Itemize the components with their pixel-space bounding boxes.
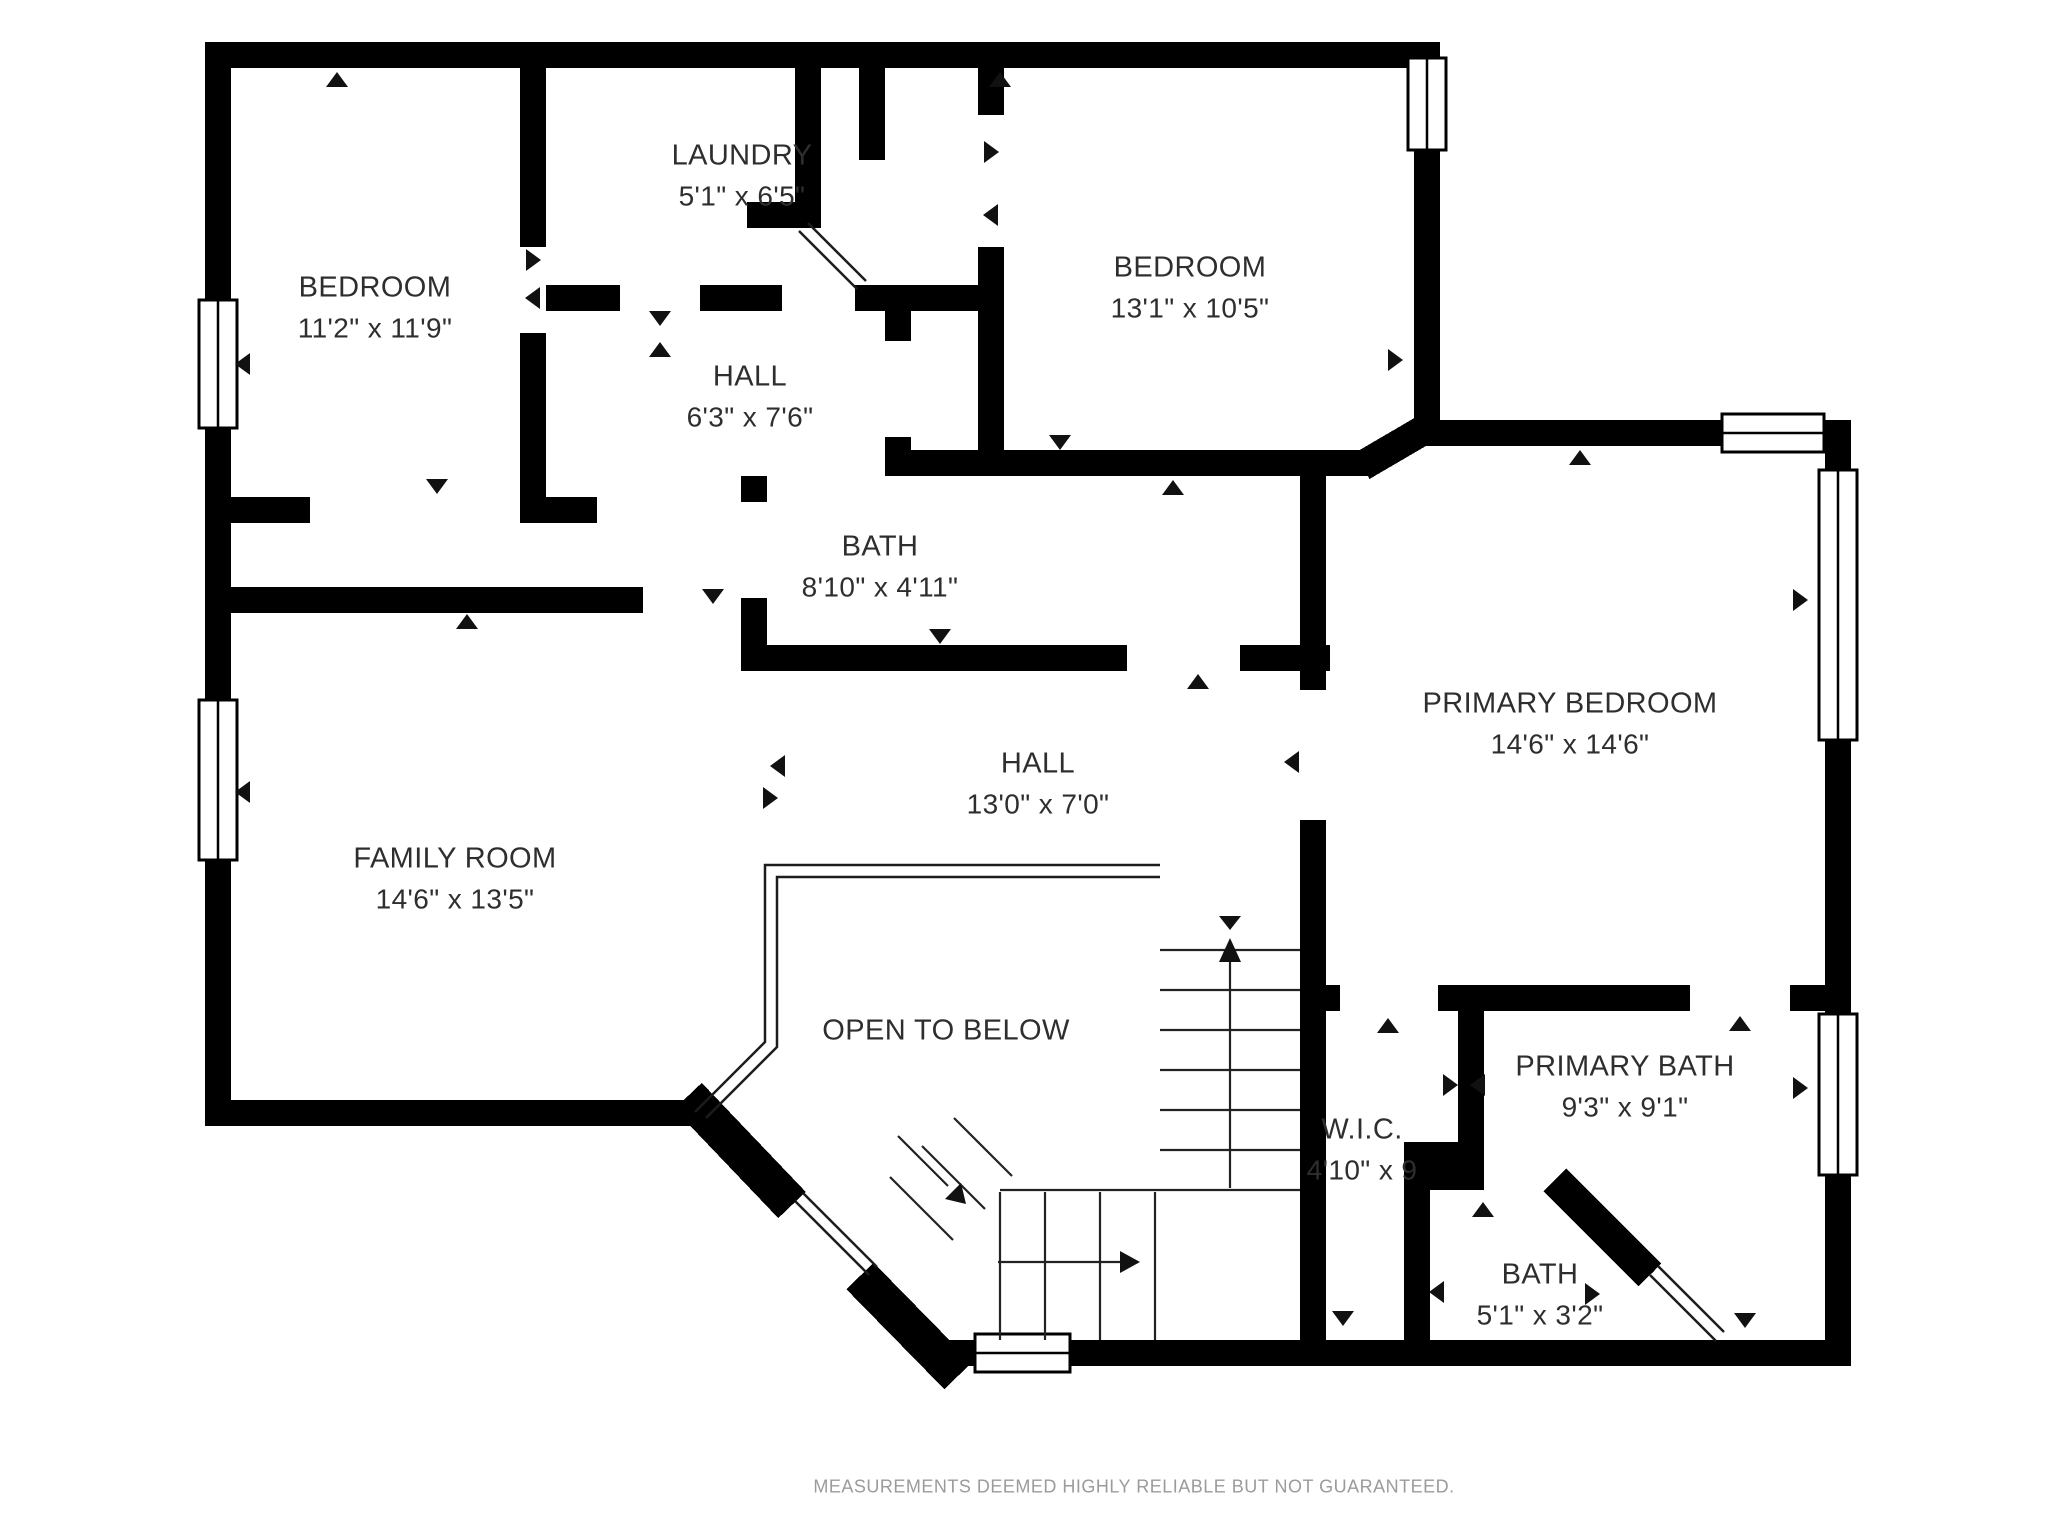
room-name: HALL	[967, 744, 1110, 785]
room-name: HALL	[687, 357, 814, 398]
room-dims: 9'3" x 9'1"	[1515, 1088, 1734, 1128]
room-name: PRIMARY BEDROOM	[1423, 684, 1718, 725]
room-dims: 14'6" x 13'5"	[353, 880, 556, 920]
room-label-open-to-below: OPEN TO BELOW	[822, 1011, 1069, 1052]
room-name: OPEN TO BELOW	[822, 1011, 1069, 1052]
room-dims: 4'10" x 9	[1307, 1151, 1418, 1191]
room-dims: 14'6" x 14'6"	[1423, 725, 1718, 765]
open-to-below-railing	[695, 865, 1160, 1118]
room-name: LAUNDRY	[672, 136, 813, 177]
room-dims: 13'0" x 7'0"	[967, 785, 1110, 825]
room-dims: 13'1" x 10'5"	[1111, 289, 1270, 329]
room-label-primary-bedroom: PRIMARY BEDROOM 14'6" x 14'6"	[1423, 684, 1718, 765]
room-name: BATH	[802, 527, 959, 568]
room-name: BEDROOM	[1111, 248, 1270, 289]
room-name: BEDROOM	[298, 268, 453, 309]
room-label-bedroom-2: BEDROOM 13'1" x 10'5"	[1111, 248, 1270, 329]
room-label-laundry: LAUNDRY 5'1" x 6'5"	[672, 136, 813, 217]
room-dims: 5'1" x 6'5"	[672, 177, 813, 217]
room-label-family-room: FAMILY ROOM 14'6" x 13'5"	[353, 839, 556, 920]
room-dims: 5'1" x 3'2"	[1477, 1296, 1604, 1336]
room-name: FAMILY ROOM	[353, 839, 556, 880]
room-label-bath-2: BATH 5'1" x 3'2"	[1477, 1255, 1604, 1336]
room-name: BATH	[1477, 1255, 1604, 1296]
room-label-primary-bath: PRIMARY BATH 9'3" x 9'1"	[1515, 1047, 1734, 1128]
floorplan-page: BEDROOM 11'2" x 11'9" LAUNDRY 5'1" x 6'5…	[0, 0, 2048, 1536]
room-label-wic: W.I.C. 4'10" x 9	[1307, 1110, 1418, 1191]
room-label-hall-upper: HALL 6'3" x 7'6"	[687, 357, 814, 438]
room-name: PRIMARY BATH	[1515, 1047, 1734, 1088]
room-dims: 6'3" x 7'6"	[687, 398, 814, 438]
staircase	[890, 916, 1300, 1340]
room-label-hall-main: HALL 13'0" x 7'0"	[967, 744, 1110, 825]
room-label-bedroom-1: BEDROOM 11'2" x 11'9"	[298, 268, 453, 349]
room-label-bath-hall: BATH 8'10" x 4'11"	[802, 527, 959, 608]
disclaimer-text: MEASUREMENTS DEEMED HIGHLY RELIABLE BUT …	[813, 1477, 1454, 1498]
room-dims: 11'2" x 11'9"	[298, 309, 453, 349]
room-dims: 8'10" x 4'11"	[802, 568, 959, 608]
room-name: W.I.C.	[1307, 1110, 1418, 1151]
